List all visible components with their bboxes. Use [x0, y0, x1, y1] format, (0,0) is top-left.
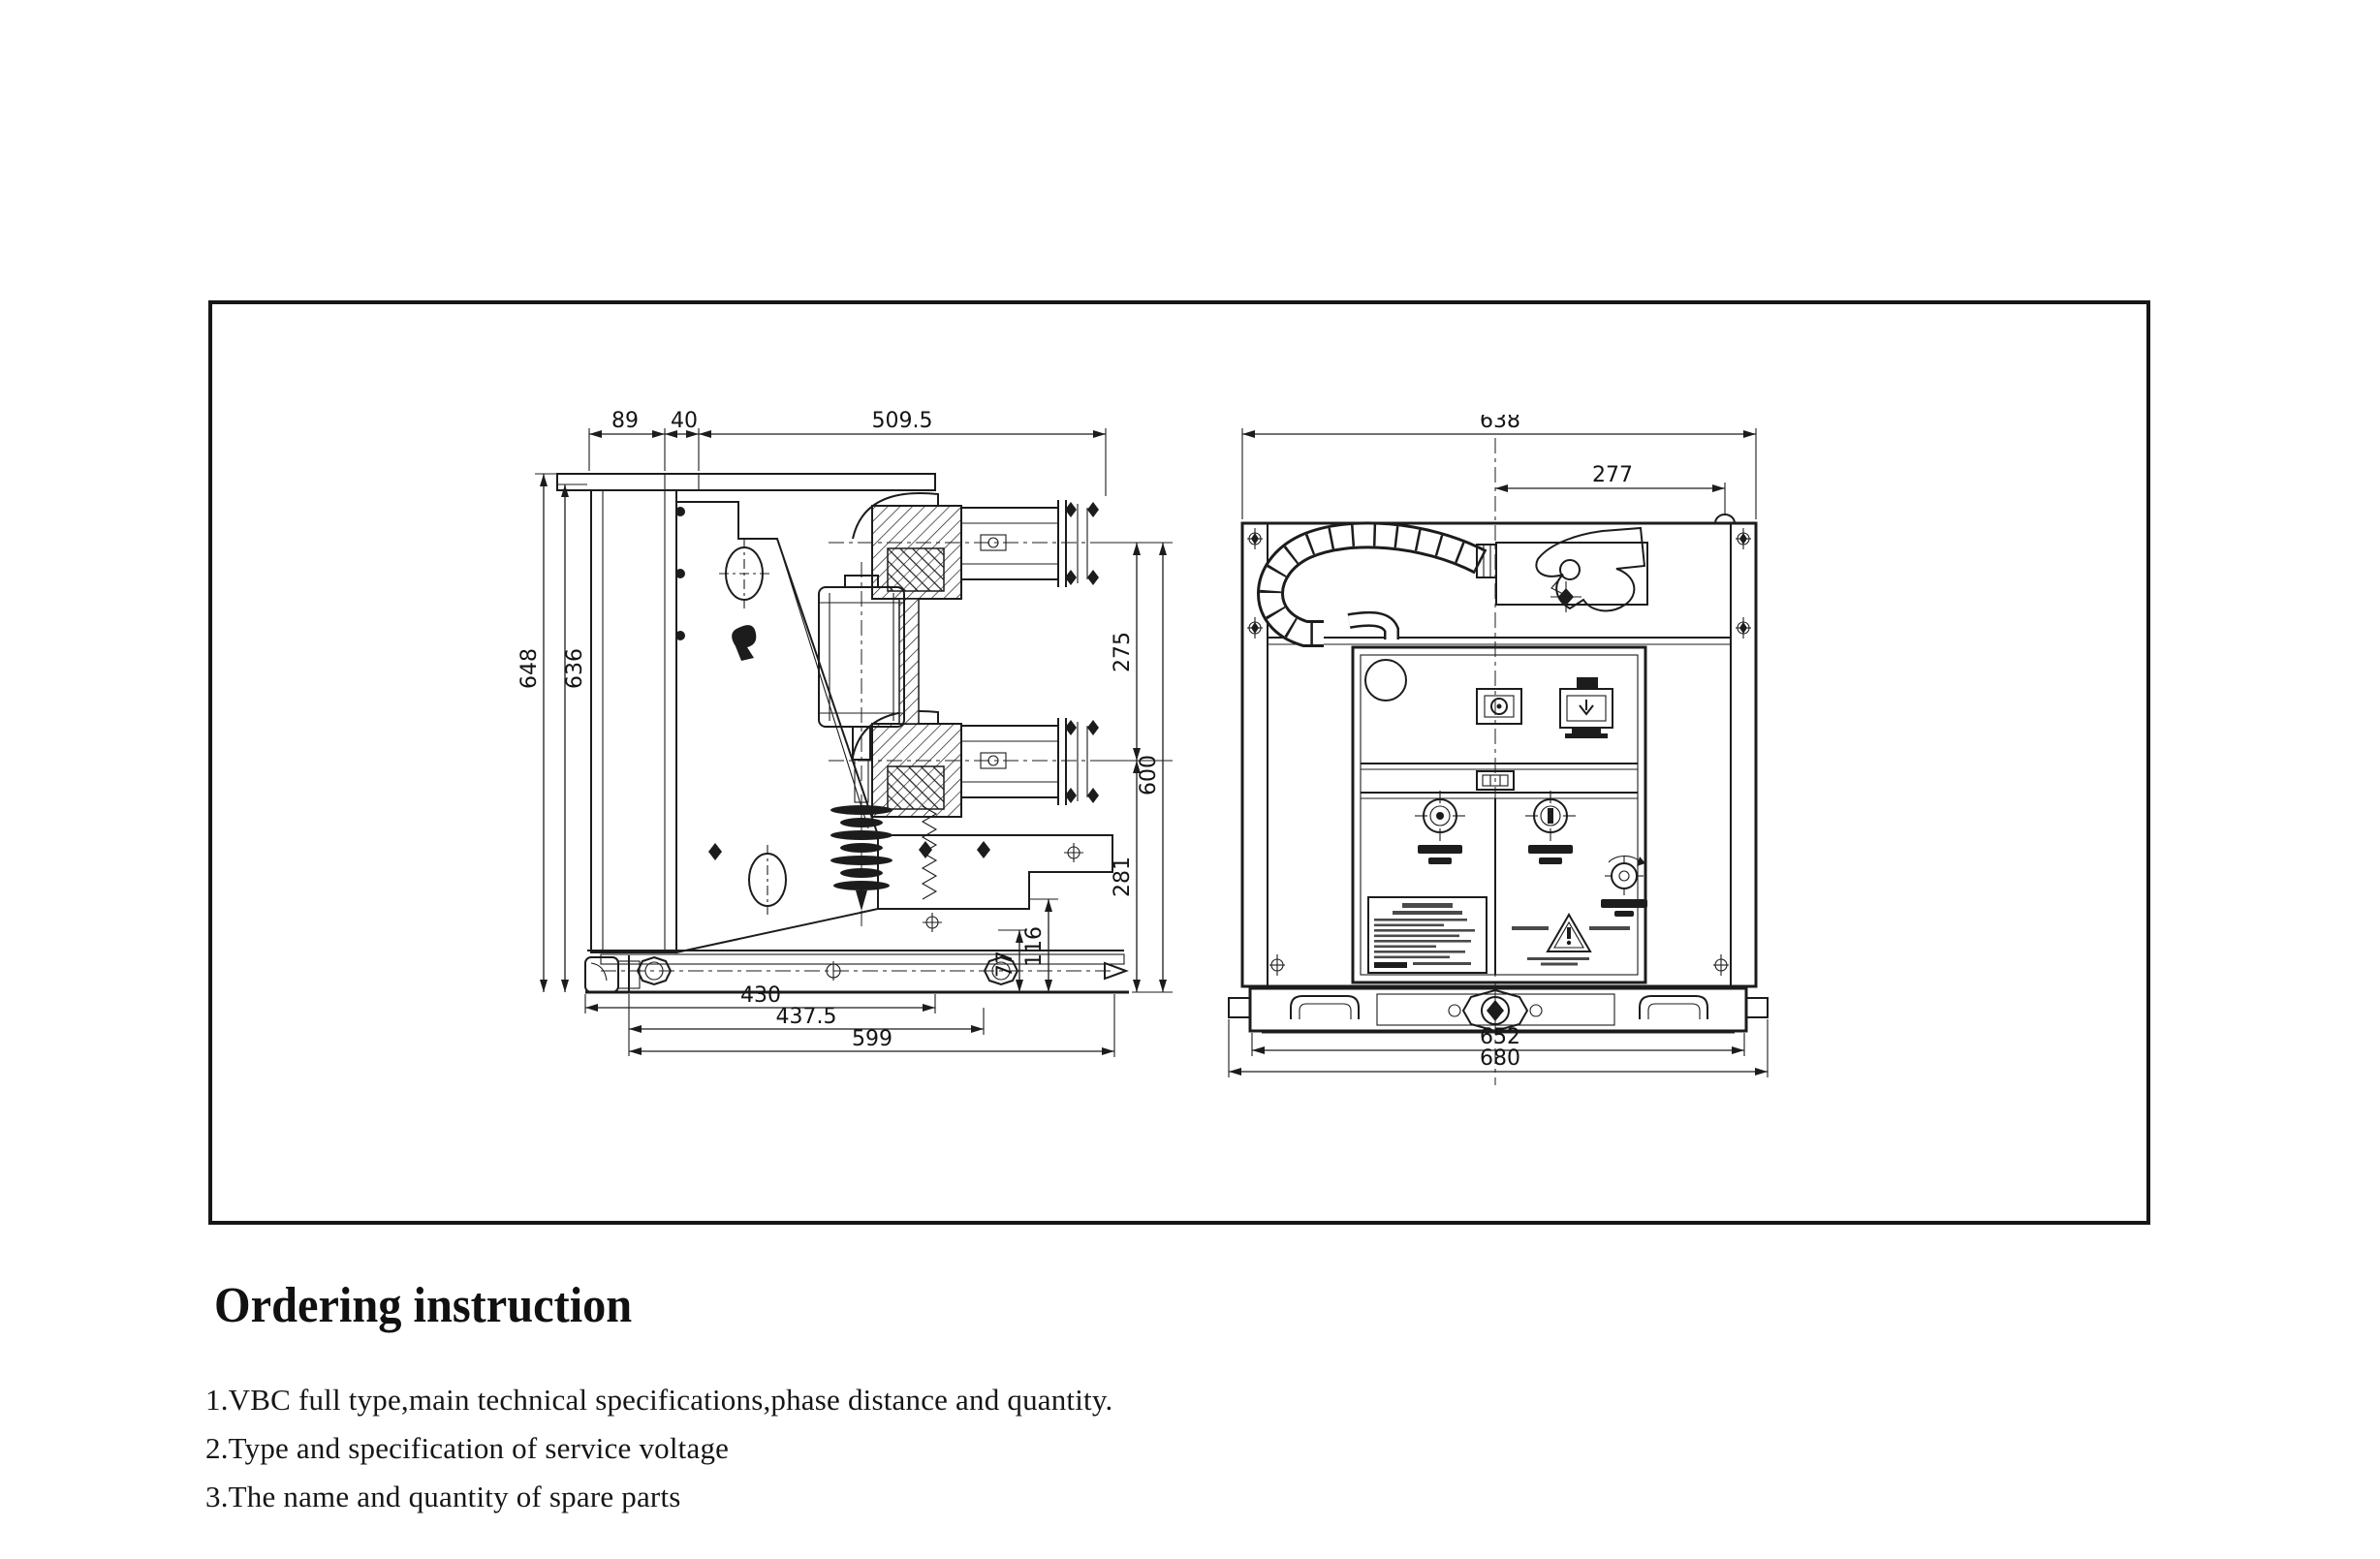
energy-storage-indicator[interactable] — [1560, 677, 1613, 738]
knob-label-blob — [1418, 845, 1462, 854]
manual-charging-symbol — [1601, 856, 1647, 917]
ordering-instruction-list: 1.VBC full type,main technical specifica… — [205, 1380, 1113, 1525]
dim-label-680: 680 — [1480, 1046, 1520, 1071]
instruction-item-2: 2.Type and specification of service volt… — [205, 1428, 1113, 1477]
dim-label-281: 281 — [1111, 857, 1135, 897]
flexible-conduit — [1270, 535, 1496, 639]
front-door-panel — [1353, 647, 1645, 982]
dim-label-509-5: 509.5 — [872, 409, 933, 433]
truck-handle-left[interactable] — [1291, 996, 1359, 1019]
dimension-right-heights: 275 600 281 — [1100, 543, 1173, 992]
warning-triangle-icon — [1512, 915, 1630, 966]
dim-label-277: 277 — [1592, 463, 1633, 487]
dim-label-600: 600 — [1137, 755, 1161, 795]
dim-label-599: 599 — [852, 1027, 892, 1051]
dim-label-648: 648 — [517, 648, 542, 689]
dim-label-437-5: 437.5 — [776, 1005, 837, 1029]
closing-knob[interactable] — [1415, 791, 1465, 864]
interlock-claw-lever — [1496, 528, 1647, 612]
side-mounting-plate — [591, 490, 685, 952]
dim-label-40: 40 — [671, 409, 698, 433]
door-round-opening — [1365, 660, 1406, 701]
dimension-277: 277 — [1495, 463, 1725, 514]
dim-label-638: 638 — [1480, 415, 1520, 433]
dim-label-275: 275 — [1111, 632, 1135, 672]
side-lower-bracket — [878, 835, 1112, 932]
dimension-left-heights: 648 636 — [517, 474, 587, 992]
dimension-inner-heights: 116 77 — [993, 899, 1058, 992]
side-view-drawing: 89 40 509.5 648 636 275 600 281 116 — [417, 405, 1221, 1074]
page-title: Ordering instruction — [214, 1277, 632, 1334]
document-page: 89 40 509.5 648 636 275 600 281 116 — [0, 0, 2380, 1559]
dimension-bottom: 430 437.5 599 — [585, 983, 1114, 1057]
front-view-drawing: 638 277 — [1202, 415, 1793, 1093]
nameplate — [1368, 897, 1487, 973]
cabinet-bolts — [1247, 528, 1751, 976]
lifting-hook-icon — [732, 625, 756, 661]
front-cabinet — [1242, 514, 1756, 986]
dim-label-89: 89 — [611, 409, 639, 433]
side-trolley — [585, 951, 1129, 992]
side-lower-pole — [829, 599, 1114, 817]
dim-label-636: 636 — [563, 648, 587, 689]
open-close-indicator[interactable] — [1477, 689, 1521, 724]
dimension-638: 638 — [1242, 415, 1756, 519]
instruction-item-3: 3.The name and quantity of spare parts — [205, 1477, 1113, 1525]
instruction-item-1: 1.VBC full type,main technical specifica… — [205, 1380, 1113, 1428]
opening-knob[interactable] — [1525, 791, 1576, 864]
dimension-top: 89 40 509.5 — [589, 409, 1106, 496]
dim-label-77: 77 — [993, 951, 1018, 978]
side-upper-pole — [829, 493, 1114, 599]
dim-label-116: 116 — [1022, 926, 1047, 967]
truck-handle-right[interactable] — [1640, 996, 1707, 1019]
side-top-plate — [557, 474, 935, 490]
knob-label-blob — [1528, 845, 1573, 854]
